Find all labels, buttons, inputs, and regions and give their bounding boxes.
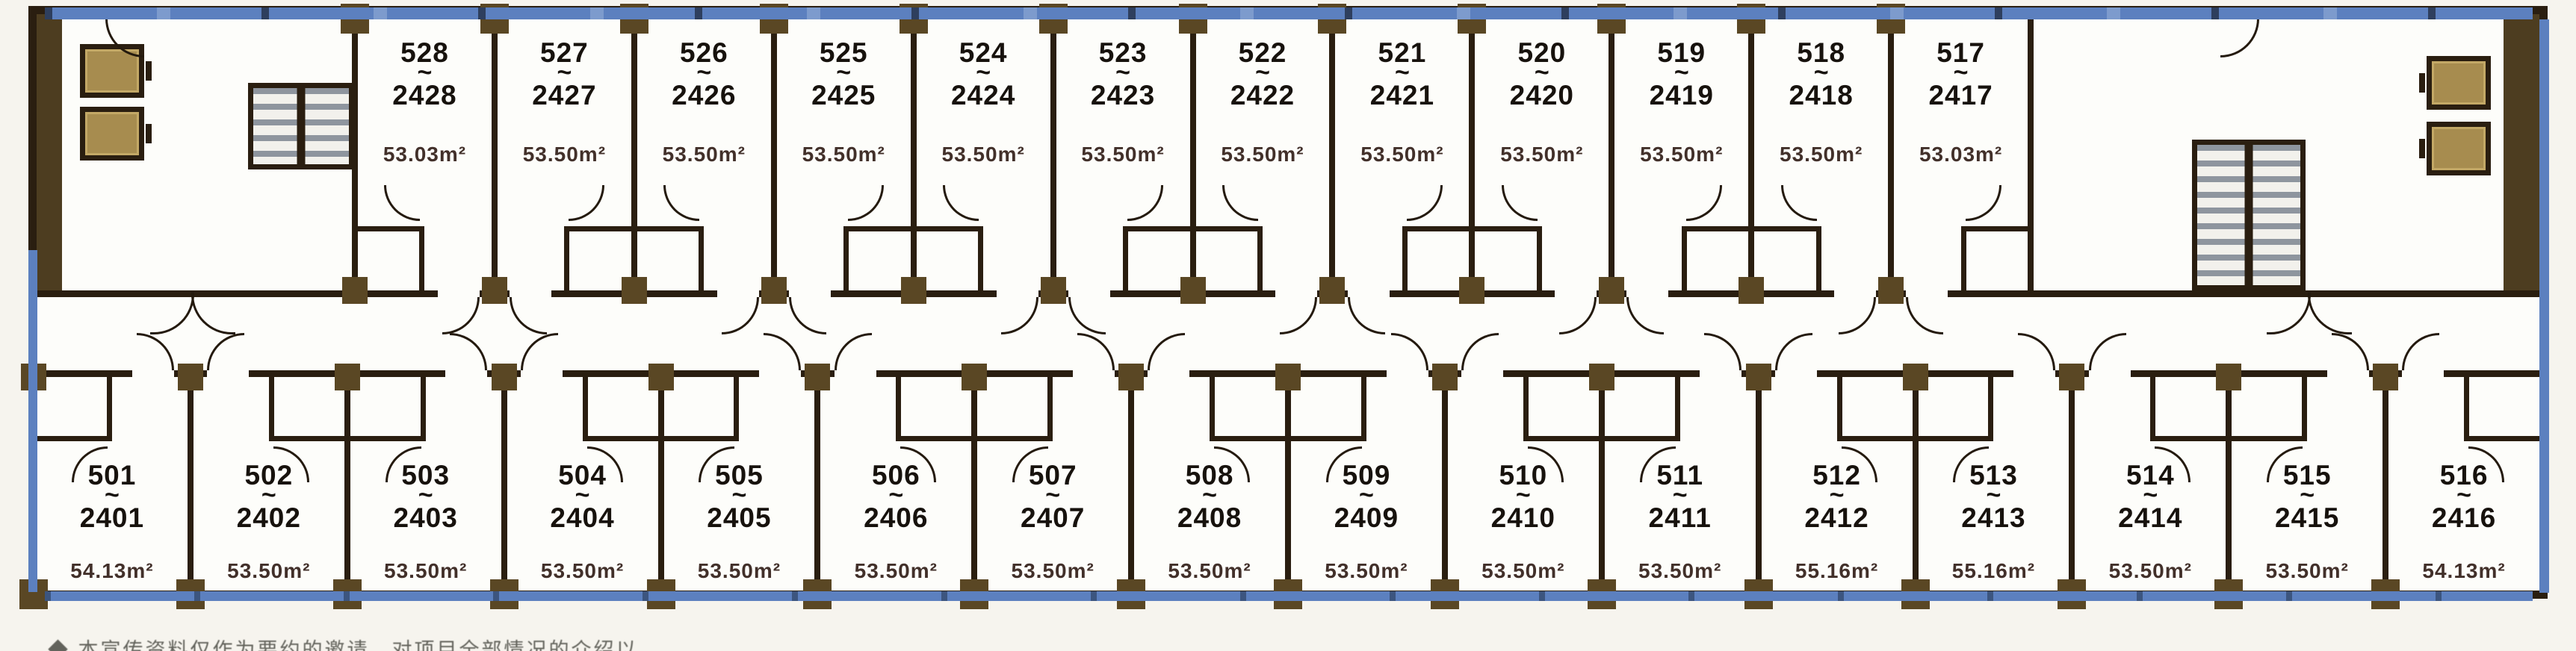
room-area: 53.50m²: [1638, 559, 1721, 583]
door-opening: [717, 290, 759, 297]
room-number-alt: 2406: [864, 503, 928, 532]
bathroom-partition: [1919, 377, 1994, 441]
room-range-tilde: ~: [2456, 490, 2471, 503]
door-arc-icon: [699, 446, 734, 482]
room-range-tilde: ~: [2300, 490, 2315, 503]
door-arc-icon: [943, 185, 979, 221]
room-area: 53.50m²: [523, 143, 606, 166]
room-cell: 525 ~ 2425 53.50m²: [771, 14, 911, 290]
wall-slab: [2504, 14, 2539, 290]
room-cell: 501 ~ 2401 54.13m²: [37, 377, 188, 599]
room-range-tilde: ~: [1255, 67, 1270, 81]
stairs-icon: [248, 83, 354, 169]
room-cell: 526 ~ 2426 53.50m²: [631, 14, 771, 290]
door-arc-icon: [1326, 446, 1362, 482]
room-number-alt: 2420: [1510, 81, 1574, 110]
room-number-alt: 2423: [1091, 81, 1155, 110]
double-door-icon: [149, 292, 237, 335]
door-arc-icon: [1781, 185, 1817, 221]
room-range-tilde: ~: [1987, 490, 2001, 503]
bathroom-partition: [664, 377, 740, 441]
door-opening: [2327, 370, 2369, 377]
door-opening: [2089, 370, 2131, 377]
room-area: 53.03m²: [1919, 143, 2002, 166]
room-number-alt: 2422: [1230, 81, 1295, 110]
room-number-alt: 2426: [672, 81, 736, 110]
bathroom-partition: [917, 226, 983, 290]
door-opening: [1834, 290, 1876, 297]
room-cell: 517 ~ 2417 53.03m²: [1888, 14, 2028, 290]
room-range-tilde: ~: [696, 67, 711, 81]
room-area: 53.50m²: [942, 143, 1025, 166]
room-area: 54.13m²: [2422, 559, 2505, 583]
bathroom-partition: [637, 226, 704, 290]
door-opening: [789, 290, 831, 297]
room-range-tilde: ~: [888, 490, 903, 503]
bathroom-partition: [1523, 377, 1599, 441]
door-arc-icon: [2220, 19, 2259, 57]
bathroom-partition: [1605, 377, 1680, 441]
room-number-alt: 2418: [1789, 81, 1854, 110]
door-arc-icon: [569, 185, 604, 221]
door-opening: [132, 370, 174, 377]
door-opening: [1906, 290, 1948, 297]
room-range-tilde: ~: [1359, 490, 1374, 503]
door-arc-icon: [72, 446, 108, 482]
room-number-alt: 2416: [2432, 503, 2496, 532]
door-arc-icon: [663, 185, 699, 221]
stairs-icon: [2192, 140, 2306, 290]
door-arc-icon: [2468, 446, 2504, 482]
door-arc-icon: [386, 446, 421, 482]
room-number-alt: 2413: [1961, 503, 2025, 532]
room-number-alt: 2409: [1334, 503, 1399, 532]
rooms-bottom-row: 501 ~ 2401 54.13m² 502 ~ 2402 53.50m² 50…: [37, 370, 2539, 599]
room-area: 53.50m²: [2109, 559, 2192, 583]
elevator-icon: [2427, 122, 2491, 175]
door-arc-icon: [1127, 185, 1163, 221]
door-opening: [1073, 370, 1115, 377]
room-number-alt: 2414: [2118, 503, 2182, 532]
left-service-core: [37, 14, 358, 290]
door-opening: [445, 370, 487, 377]
room-cell: 527 ~ 2427 53.50m²: [492, 14, 631, 290]
room-number-alt: 2415: [2275, 503, 2339, 532]
room-cell: 508 ~ 2408 53.50m²: [1128, 377, 1285, 599]
room-area: 53.50m²: [384, 559, 467, 583]
floor-plan: 528 ~ 2428 53.03m² 527 ~ 2427 53.50m² 52…: [0, 0, 2576, 651]
bathroom-partition: [1475, 226, 1541, 290]
bathroom-partition: [977, 377, 1053, 441]
room-number-alt: 2421: [1370, 81, 1434, 110]
door-arc-icon: [1966, 185, 2001, 221]
bathroom-partition: [358, 226, 424, 290]
room-number-alt: 2424: [951, 81, 1015, 110]
room-cell: 520 ~ 2420 53.50m²: [1469, 14, 1609, 290]
door-arc-icon: [587, 446, 623, 482]
room-cell: 505 ~ 2405 53.50m²: [658, 377, 815, 599]
room-area: 55.16m²: [1795, 559, 1878, 583]
door-opening: [1461, 370, 1503, 377]
room-area: 53.50m²: [227, 559, 310, 583]
room-area: 53.50m²: [1780, 143, 1863, 166]
door-opening: [1626, 290, 1668, 297]
room-number-alt: 2410: [1491, 503, 1555, 532]
door-arc-icon: [1222, 185, 1258, 221]
window-band-top: [45, 7, 2533, 19]
elevator-icon: [80, 107, 144, 161]
room-cell: 518 ~ 2418 53.50m²: [1748, 14, 1888, 290]
bathroom-partition: [1291, 377, 1366, 441]
room-cell: 506 ~ 2406 53.50m²: [814, 377, 971, 599]
wall-slab: [37, 14, 62, 290]
door-arc-icon: [1012, 446, 1048, 482]
room-range-tilde: ~: [1395, 67, 1410, 81]
room-cell: 516 ~ 2416 54.13m²: [2383, 377, 2539, 599]
room-cell: 519 ~ 2419 53.50m²: [1609, 14, 1748, 290]
room-number-alt: 2401: [80, 503, 144, 532]
room-cell: 524 ~ 2424 53.50m²: [911, 14, 1050, 290]
room-range-tilde: ~: [1673, 490, 1688, 503]
bathroom-partition: [1210, 377, 1285, 441]
door-opening: [1348, 290, 1390, 297]
window-band-right: [2539, 19, 2549, 593]
room-area: 53.50m²: [698, 559, 781, 583]
bathroom-partition: [2232, 377, 2307, 441]
door-arc-icon: [2267, 446, 2303, 482]
room-area: 53.50m²: [802, 143, 885, 166]
bathroom-partition: [1961, 226, 2028, 290]
room-number-alt: 2425: [811, 81, 876, 110]
room-area: 53.50m²: [1481, 559, 1564, 583]
door-arc-icon: [2155, 446, 2190, 482]
room-range-tilde: ~: [1045, 490, 1060, 503]
rooms-top-row: 528 ~ 2428 53.03m² 527 ~ 2427 53.50m² 52…: [358, 14, 2028, 290]
room-range-tilde: ~: [575, 490, 590, 503]
door-opening: [1555, 290, 1597, 297]
room-cell: 515 ~ 2415 53.50m²: [2226, 377, 2383, 599]
door-arc-icon: [1528, 446, 1564, 482]
bathroom-partition: [350, 377, 426, 441]
room-area: 53.50m²: [1640, 143, 1723, 166]
room-number-alt: 2427: [532, 81, 596, 110]
door-arc-icon: [848, 185, 884, 221]
room-area: 53.03m²: [383, 143, 466, 166]
room-range-tilde: ~: [1115, 67, 1130, 81]
elevator-icon: [2427, 56, 2491, 110]
door-opening: [1387, 370, 1428, 377]
room-area: 53.50m²: [2266, 559, 2349, 583]
room-number-alt: 2419: [1650, 81, 1714, 110]
room-cell: 507 ~ 2407 53.50m²: [971, 377, 1128, 599]
door-opening: [1275, 290, 1317, 297]
bathroom-partition: [37, 377, 112, 441]
double-door-icon: [2265, 292, 2353, 335]
room-cell: 513 ~ 2413 55.16m²: [1913, 377, 2069, 599]
room-cell: 521 ~ 2421 53.50m²: [1329, 14, 1469, 290]
bathroom-partition: [2150, 377, 2226, 441]
room-area: 54.13m²: [70, 559, 153, 583]
disclaimer-text: ◆ 本宣传资料仅作为要约的邀请，对项目全部情况的介绍以…: [48, 634, 661, 651]
room-area: 53.50m²: [1221, 143, 1304, 166]
door-arc-icon: [1953, 446, 1989, 482]
room-range-tilde: ~: [1535, 67, 1549, 81]
bathroom-partition: [1754, 226, 1821, 290]
room-area: 53.50m²: [541, 559, 624, 583]
room-cell: 509 ~ 2409 53.50m²: [1285, 377, 1442, 599]
room-number-alt: 2405: [707, 503, 771, 532]
room-range-tilde: ~: [2143, 490, 2158, 503]
room-cell: 523 ~ 2423 53.50m²: [1050, 14, 1190, 290]
door-arc-icon: [1842, 446, 1877, 482]
room-cell: 522 ~ 2422 53.50m²: [1190, 14, 1330, 290]
door-arc-icon: [900, 446, 936, 482]
door-opening: [1148, 370, 1189, 377]
door-arc-icon: [1686, 185, 1722, 221]
room-area: 53.50m²: [1081, 143, 1164, 166]
room-number-alt: 2407: [1021, 503, 1085, 532]
door-opening: [1700, 370, 1741, 377]
door-opening: [510, 290, 551, 297]
bathroom-partition: [1837, 377, 1913, 441]
room-number-alt: 2408: [1177, 503, 1242, 532]
door-arc-icon: [1214, 446, 1250, 482]
room-cell: 528 ~ 2428 53.03m²: [358, 14, 492, 290]
room-number-alt: 2402: [237, 503, 301, 532]
room-range-tilde: ~: [1830, 490, 1845, 503]
room-range-tilde: ~: [557, 67, 572, 81]
room-range-tilde: ~: [976, 67, 991, 81]
room-cell: 512 ~ 2412 55.16m²: [1756, 377, 1913, 599]
room-range-tilde: ~: [836, 67, 851, 81]
room-area: 53.50m²: [855, 559, 938, 583]
door-opening: [997, 290, 1038, 297]
room-area: 53.50m²: [1360, 143, 1443, 166]
room-number-alt: 2404: [550, 503, 614, 532]
door-opening: [521, 370, 563, 377]
bathroom-partition: [269, 377, 344, 441]
room-range-tilde: ~: [105, 490, 120, 503]
room-range-tilde: ~: [732, 490, 747, 503]
room-area: 53.50m²: [1012, 559, 1095, 583]
room-cell: 514 ~ 2414 53.50m²: [2069, 377, 2226, 599]
bathroom-partition: [2464, 377, 2539, 441]
door-opening: [835, 370, 876, 377]
right-service-core: [2028, 14, 2539, 290]
door-opening: [2013, 370, 2055, 377]
room-range-tilde: ~: [1674, 67, 1689, 81]
window-band-left: [28, 250, 37, 592]
door-arc-icon: [384, 185, 420, 221]
room-number-alt: 2412: [1804, 503, 1868, 532]
room-range-tilde: ~: [1202, 490, 1217, 503]
door-arc-icon: [1502, 185, 1538, 221]
room-area: 55.16m²: [1952, 559, 2035, 583]
door-arc-icon: [273, 446, 309, 482]
room-range-tilde: ~: [1516, 490, 1531, 503]
door-opening: [438, 290, 480, 297]
door-opening: [2402, 370, 2444, 377]
room-range-tilde: ~: [418, 67, 433, 81]
door-opening: [759, 370, 801, 377]
door-opening: [1068, 290, 1110, 297]
room-range-tilde: ~: [418, 490, 433, 503]
room-number-alt: 2411: [1649, 503, 1712, 532]
room-number-alt: 2403: [394, 503, 458, 532]
bathroom-partition: [896, 377, 971, 441]
room-cell: 502 ~ 2402 53.50m²: [188, 377, 344, 599]
room-cell: 510 ~ 2410 53.50m²: [1442, 377, 1599, 599]
room-cell: 511 ~ 2411 53.50m²: [1599, 377, 1756, 599]
top-room-band: 528 ~ 2428 53.03m² 527 ~ 2427 53.50m² 52…: [37, 14, 2539, 297]
room-range-tilde: ~: [261, 490, 276, 503]
door-arc-icon: [1640, 446, 1676, 482]
room-area: 53.50m²: [1168, 559, 1251, 583]
door-opening: [1775, 370, 1817, 377]
room-cell: 504 ~ 2404 53.50m²: [501, 377, 658, 599]
bathroom-partition: [583, 377, 658, 441]
room-area: 53.50m²: [1325, 559, 1408, 583]
room-area: 53.50m²: [663, 143, 746, 166]
room-cell: 503 ~ 2403 53.50m²: [344, 377, 501, 599]
room-range-tilde: ~: [1814, 67, 1829, 81]
room-number-alt: 2417: [1928, 81, 1993, 110]
room-range-tilde: ~: [1954, 67, 1969, 81]
window-band-bottom: [45, 591, 2533, 601]
room-area: 53.50m²: [1500, 143, 1583, 166]
door-opening: [207, 370, 249, 377]
room-number-alt: 2428: [392, 81, 456, 110]
door-arc-icon: [1407, 185, 1443, 221]
bathroom-partition: [1196, 226, 1263, 290]
